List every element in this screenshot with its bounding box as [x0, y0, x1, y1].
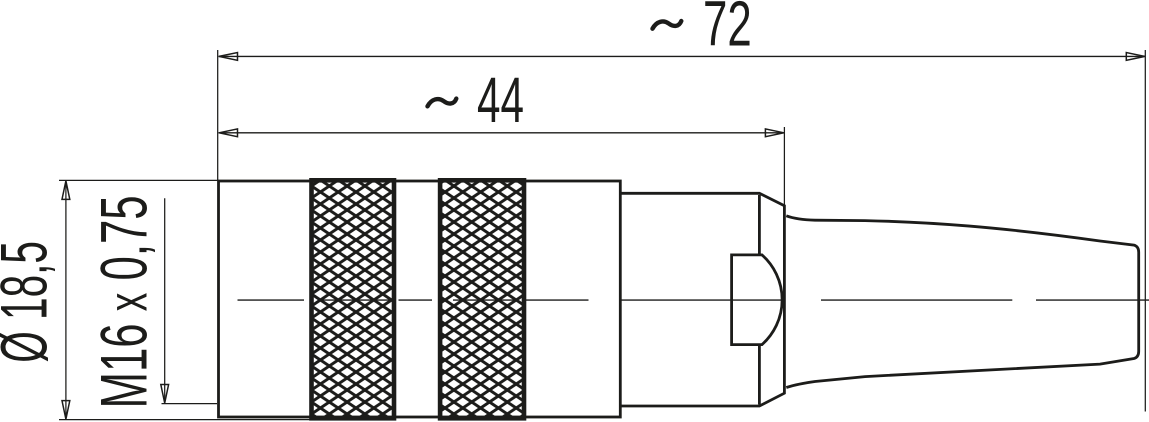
svg-text:44: 44 [477, 64, 524, 136]
svg-text:Ø 18,5: Ø 18,5 [0, 241, 61, 363]
svg-text:M16 x 0,75: M16 x 0,75 [86, 195, 160, 408]
svg-text:72: 72 [703, 0, 752, 60]
